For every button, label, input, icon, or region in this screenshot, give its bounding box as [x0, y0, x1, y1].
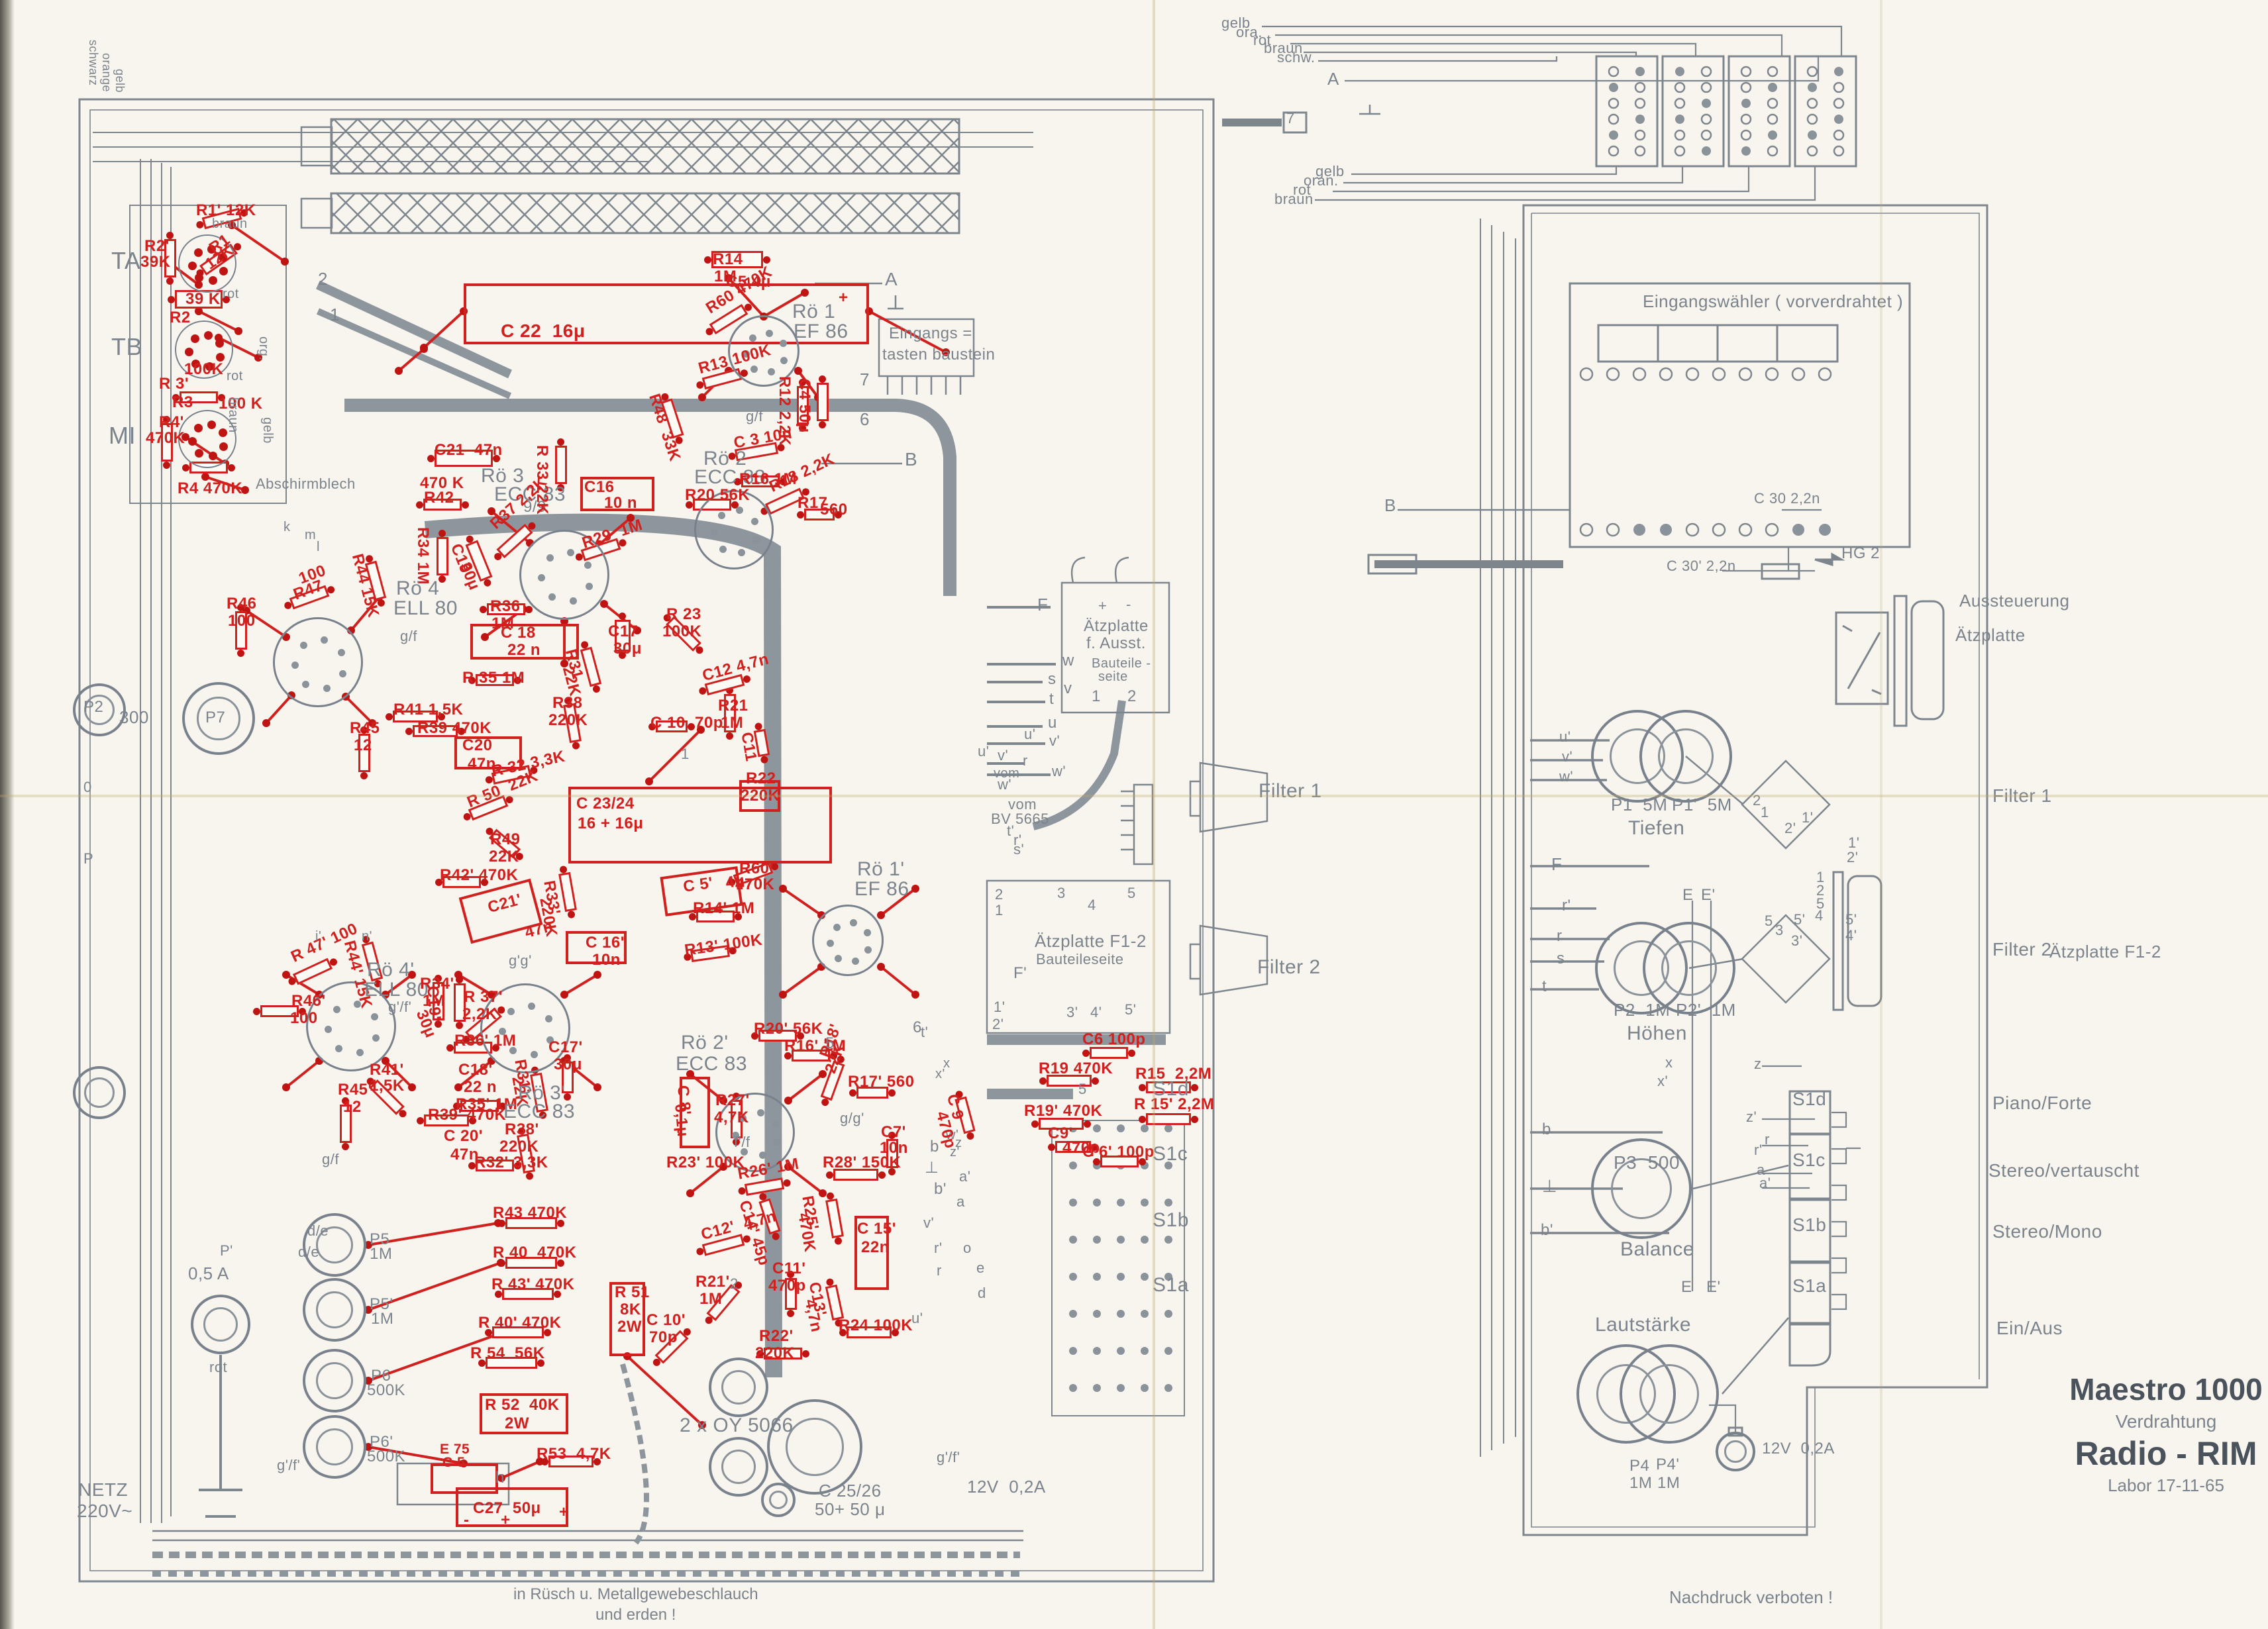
diagram-label: 470p: [768, 1278, 806, 1294]
potentiometer-icon: [73, 1066, 126, 1119]
diagram-label: C 30 2,2n: [1754, 491, 1820, 506]
diagram-label: R 43' 470K: [491, 1277, 574, 1293]
diagram-label: t: [1049, 691, 1054, 707]
socket-pin-icon: [772, 1120, 780, 1128]
socket-pin-icon: [291, 662, 299, 669]
diagram-label: EF 86: [854, 879, 909, 899]
socket-pin-icon: [545, 1015, 552, 1022]
diagram-label: P: [83, 852, 93, 866]
diagram-label: R24 100K: [839, 1318, 913, 1334]
solder-joint-icon: [281, 258, 289, 266]
diagram-label: schw.: [1277, 50, 1315, 65]
diagram-label: a': [959, 1169, 970, 1184]
tube-socket-icon: [812, 905, 884, 976]
diagram-label: o: [963, 1241, 972, 1256]
diagram-label: Ätzplatte F1-2: [2049, 943, 2161, 960]
diagram-label: R14: [713, 252, 743, 268]
diagram-label: C4 50μ: [796, 379, 812, 433]
diagram-label: ⊥: [925, 1160, 939, 1176]
diagram-label: g/f: [746, 409, 763, 424]
socket-pin-icon: [195, 273, 203, 282]
diagram-label: 220V~: [77, 1502, 132, 1520]
socket-pin-icon: [711, 529, 718, 536]
diagram-label: R21: [718, 698, 748, 714]
socket-pin-icon: [356, 1049, 364, 1056]
resistor-icon: [1090, 1047, 1128, 1059]
diagram-label: C16: [584, 479, 615, 495]
socket-pin-icon: [774, 1139, 781, 1146]
socket-pin-icon: [333, 1006, 340, 1013]
socket-pin-icon: [749, 334, 756, 342]
potentiometer-icon: [1716, 1432, 1755, 1471]
diagram-label: R38: [552, 695, 583, 711]
diagram-label: +: [839, 290, 849, 306]
red-wire: [501, 1461, 540, 1478]
diagram-label: 5: [1127, 886, 1136, 901]
socket-pin-icon: [780, 357, 788, 364]
diagram-label: C21 47n: [435, 442, 503, 458]
diagram-label: P2' 1M: [1676, 1001, 1736, 1018]
diagram-label: 2': [1847, 850, 1858, 865]
diagram-label: R3: [172, 395, 193, 411]
schematic-page: R1' 12KR2'39KR112K39 KR2100KR 3'R3100 KR…: [0, 0, 2268, 1629]
red-wire: [881, 967, 915, 995]
diagram-label: R36' 1M: [454, 1033, 516, 1049]
diagram-label: 2: [318, 270, 328, 287]
socket-pin-icon: [738, 549, 745, 556]
diagram-label: 0: [83, 780, 92, 795]
solder-joint-icon: [779, 991, 787, 999]
diagram-label: t': [921, 1025, 928, 1040]
diagram-label: R 40 470K: [493, 1245, 576, 1261]
socket-pin-icon: [194, 248, 203, 257]
diagram-label: 500K: [367, 1383, 405, 1399]
diagram-label: 300: [119, 709, 149, 726]
diagram-label: u': [1024, 727, 1035, 742]
diagram-label: R19 470K: [1039, 1061, 1113, 1077]
potentiometer-icon: [1620, 1344, 1719, 1444]
diagram-label: b': [1541, 1222, 1553, 1238]
socket-pin-icon: [219, 442, 228, 451]
diagram-label: Filter 2: [1992, 940, 2052, 959]
diagram-label: R 51: [615, 1285, 650, 1301]
diagram-label: v': [923, 1216, 934, 1230]
diagram-label: orange: [101, 53, 113, 92]
diagram-label: Filter 1: [1259, 781, 1322, 801]
diagram-label: Balance: [1620, 1240, 1694, 1259]
diagram-label: R42: [424, 490, 454, 506]
diagram-label: 220K: [755, 1346, 794, 1361]
socket-pin-icon: [538, 574, 545, 581]
diagram-label: R28' 150K: [823, 1155, 901, 1171]
diagram-label: 100: [228, 613, 256, 629]
diagram-label: 16 + 16μ: [578, 816, 643, 832]
diagram-label: 2': [992, 1017, 1004, 1032]
diagram-label: C 25/26: [819, 1482, 882, 1499]
title-block: Maestro 1000 Verdrahtung Radio - RIM Lab…: [2067, 1372, 2265, 1495]
socket-pin-icon: [835, 955, 842, 962]
diagram-label: 560: [820, 502, 848, 518]
diagram-label: r: [1557, 928, 1563, 944]
socket-pin-icon: [752, 536, 760, 544]
diagram-label: C17: [608, 624, 639, 640]
diagram-label: v: [1064, 681, 1072, 697]
fold-crease: [1153, 0, 1155, 1629]
diagram-label: C27 50μ: [473, 1501, 541, 1516]
diagram-label: r: [1765, 1132, 1770, 1147]
red-wire: [286, 1061, 319, 1087]
diagram-label: Rö 4: [396, 579, 439, 599]
diagram-label: C11': [772, 1261, 805, 1277]
diagram-label: 2': [1784, 821, 1796, 836]
diagram-label: 2: [1127, 689, 1137, 705]
diagram-label: s: [1048, 671, 1057, 687]
diagram-label: u': [978, 744, 989, 759]
socket-pin-icon: [219, 267, 228, 275]
diagram-label: R2: [170, 310, 191, 326]
socket-pin-icon: [570, 597, 577, 605]
diagram-label: tasten baustein: [882, 347, 995, 363]
diagram-label: braun: [212, 217, 248, 230]
diagram-label: k: [283, 520, 291, 534]
diagram-label: rot: [223, 287, 239, 301]
diagram-label: 220K: [548, 713, 588, 728]
diagram-label: R17' 560: [848, 1074, 914, 1090]
diagram-label: a: [956, 1195, 965, 1209]
diagram-label: 2W: [617, 1319, 642, 1335]
diagram-label: 4': [1845, 928, 1857, 943]
diagram-label: g/f: [322, 1152, 339, 1167]
diagram-label: r: [937, 1263, 942, 1278]
diagram-label: A: [1327, 70, 1339, 87]
potentiometer-icon: [191, 1295, 250, 1354]
socket-pin-icon: [864, 929, 871, 936]
diagram-label: -: [1126, 597, 1131, 612]
diagram-label: EF 86: [794, 322, 849, 342]
diagram-label: C 30' 2,2n: [1667, 559, 1736, 573]
solder-joint-icon: [911, 991, 919, 999]
diagram-label: u': [911, 1311, 923, 1326]
diagram-label: 12V 0,2A: [1762, 1441, 1835, 1457]
diagram-label: C17': [548, 1040, 583, 1056]
diagram-label: R4 470K: [178, 481, 242, 497]
resistor-icon: [437, 537, 448, 575]
diagram-label: 2: [730, 1277, 739, 1291]
solder-joint-icon: [645, 777, 653, 785]
diagram-label: g'/f': [937, 1450, 960, 1465]
diagram-label: C 10': [646, 1312, 686, 1328]
diagram-label: 8K: [620, 1302, 641, 1318]
diagram-label: R23' 100K: [666, 1155, 745, 1171]
diagram-label: 5: [825, 1036, 835, 1052]
diagram-label: 5: [1078, 1082, 1087, 1097]
solder-joint-icon: [686, 1189, 694, 1197]
diagram-label: n': [362, 930, 372, 943]
diagram-label: 2: [995, 887, 1004, 902]
diagram-label: C 6' 100p: [1082, 1144, 1155, 1160]
diagram-label: E: [1681, 1279, 1692, 1295]
red-wire: [424, 311, 464, 348]
diagram-label: b': [934, 1181, 947, 1197]
diagram-label: schwarz: [87, 40, 99, 86]
solder-joint-icon: [779, 885, 787, 893]
diagram-label: d: [978, 1286, 986, 1301]
solder-joint-icon: [877, 911, 885, 919]
diagram-label: C 5': [682, 875, 714, 895]
socket-pin-icon: [209, 276, 217, 285]
diagram-label: 1M: [370, 1246, 392, 1262]
solder-joint-icon: [408, 1083, 416, 1091]
resistor-icon: [555, 446, 567, 484]
diagram-label: R45: [350, 720, 380, 736]
diagram-label: 5': [1845, 913, 1857, 927]
socket-pin-icon: [188, 437, 197, 446]
drawing-type: Verdrahtung: [2067, 1411, 2265, 1432]
diagram-label: Abschirmblech: [256, 477, 356, 491]
diagram-label: 50+ 50 μ: [815, 1501, 885, 1518]
diagram-label: R 54 56K: [470, 1346, 545, 1361]
diagram-label: gelb: [261, 417, 274, 444]
diagram-label: C 22 16μ: [501, 322, 585, 340]
socket-pin-icon: [751, 518, 758, 525]
diagram-label: R46: [227, 596, 257, 612]
diagram-label: z': [1746, 1110, 1757, 1124]
diagram-label: r': [1754, 1143, 1763, 1158]
socket-pin-icon: [191, 334, 199, 343]
diagram-label: A: [885, 270, 898, 289]
diagram-label: u: [1048, 715, 1057, 731]
diagram-label: S1a: [1153, 1275, 1189, 1295]
potentiometer-icon: [709, 1437, 768, 1497]
diagram-label: Stereo/Mono: [1992, 1222, 2102, 1241]
diagram-label: Aussteuerung: [1959, 592, 2069, 609]
solder-joint-icon: [593, 971, 601, 979]
diagram-label: R 52 40K: [485, 1397, 560, 1413]
diagram-label: P7: [205, 710, 225, 726]
potentiometer-icon: [761, 1483, 796, 1517]
diagram-label: 500K: [367, 1449, 405, 1465]
diagram-label: 470K: [146, 430, 185, 446]
diagram-label: C6 100p: [1082, 1032, 1146, 1048]
socket-pin-icon: [759, 1152, 766, 1159]
socket-pin-icon: [335, 1045, 342, 1052]
diagram-label: w': [1559, 769, 1573, 784]
diagram-label: d/e: [298, 1245, 319, 1259]
diagram-label: R46': [291, 993, 326, 1009]
diagram-label: ELL 80: [393, 599, 458, 618]
diagram-label: braun: [227, 397, 240, 433]
potentiometer-icon: [1639, 710, 1732, 803]
diagram-label: R 37': [464, 989, 503, 1005]
socket-pin-icon: [864, 946, 872, 954]
diagram-label: 22n: [861, 1240, 890, 1256]
diagram-label: Stereo/vertauscht: [1988, 1161, 2139, 1180]
diagram-label: C11: [738, 731, 758, 763]
diagram-label: R4': [159, 415, 184, 430]
diagram-label: Tiefen: [1628, 818, 1684, 838]
diagram-label: 30μ: [613, 641, 642, 657]
diagram-label: w: [1062, 653, 1074, 669]
diagram-label: 6: [860, 411, 870, 428]
diagram-label: 2 x OY 5066: [680, 1416, 794, 1436]
diagram-label: C 16': [586, 935, 625, 951]
diagram-label: x': [935, 1067, 945, 1081]
diagram-label: d/e: [307, 1224, 329, 1238]
diagram-label: 22 n: [464, 1079, 497, 1095]
diagram-label: e: [976, 1261, 985, 1275]
diagram-label: C 20': [444, 1128, 483, 1144]
diagram-label: R36: [490, 599, 521, 615]
diagram-label: f'/f: [734, 1135, 750, 1150]
diagram-label: Ein/Aus: [1996, 1319, 2063, 1338]
solder-joint-icon: [877, 963, 885, 971]
fold-crease: [0, 795, 2268, 797]
diagram-label: P4': [1656, 1457, 1679, 1473]
diagram-label: Rö 2': [681, 1033, 729, 1053]
diagram-label: w': [1052, 764, 1066, 779]
diagram-label: v': [998, 748, 1008, 763]
diagram-label: S1d: [1792, 1090, 1826, 1109]
diagram-label: F: [1551, 856, 1562, 873]
diagram-label: B: [1384, 497, 1396, 514]
diagram-label: F: [1037, 596, 1048, 613]
diagram-label: C 15': [857, 1221, 896, 1237]
diagram-label: x': [1657, 1074, 1668, 1089]
diagram-label: R38': [505, 1122, 539, 1138]
diagram-label: R 3': [159, 376, 189, 392]
red-wire: [783, 889, 821, 915]
diagram-label: R34 1M: [415, 527, 431, 585]
diagram-label: g/g': [840, 1111, 864, 1126]
brand-name: Radio - RIM: [2067, 1435, 2265, 1473]
solder-joint-icon: [698, 393, 706, 401]
solder-joint-icon: [794, 367, 802, 375]
diagram-label: 1': [1848, 836, 1859, 850]
diagram-label: BV 5665: [991, 812, 1049, 826]
socket-pin-icon: [209, 452, 217, 460]
diagram-label: Bauteile -: [1092, 657, 1151, 670]
diagram-label: Rö 1: [792, 302, 835, 322]
diagram-label: 5: [1765, 914, 1773, 928]
diagram-label: C 23/24: [576, 796, 635, 812]
diagram-label: R43 470K: [493, 1205, 567, 1221]
socket-pin-icon: [852, 958, 859, 965]
diagram-label: Lautstärke: [1595, 1315, 1691, 1335]
diagram-label: r: [1023, 754, 1028, 768]
diagram-label: R 35 1M: [462, 670, 525, 686]
socket-pin-icon: [185, 348, 193, 356]
diagram-label: 10n: [592, 952, 621, 968]
diagram-label: 22K: [489, 849, 519, 865]
diagram-label: 2,2K: [462, 1007, 497, 1022]
diagram-label: R39 470K: [417, 720, 491, 736]
diagram-label: 4: [1815, 909, 1824, 923]
diagram-label: v': [1049, 734, 1060, 748]
fold-crease: [1880, 0, 1882, 1629]
diagram-label: 10n: [880, 1140, 908, 1156]
diagram-label: z: [1754, 1057, 1762, 1071]
diagram-label: 0,5 A: [188, 1265, 229, 1282]
socket-pin-icon: [338, 649, 345, 656]
socket-pin-icon: [718, 512, 725, 519]
diagram-label: 39K: [140, 254, 171, 270]
diagram-label: l: [317, 540, 320, 554]
socket-pin-icon: [195, 449, 203, 458]
diagram-label: g'g': [509, 954, 532, 968]
potentiometer-icon: [303, 1278, 366, 1342]
diagram-label: R27': [715, 1093, 750, 1109]
diagram-label: R20 56K: [685, 487, 750, 503]
diagram-label: 1M: [1657, 1475, 1680, 1491]
solder-joint-icon: [262, 719, 270, 727]
socket-pin-icon: [768, 368, 775, 375]
diagram-label: r': [1562, 898, 1571, 914]
diagram-label: m: [305, 528, 316, 542]
diagram-label: MI: [109, 424, 136, 448]
diagram-label: g/f: [400, 629, 417, 644]
socket-pin-icon: [194, 424, 203, 432]
diagram-label: 7: [1286, 111, 1295, 126]
red-wire: [788, 1074, 823, 1101]
diagram-label: Rö 4': [367, 960, 415, 980]
diagram-label: gelb: [114, 69, 126, 93]
diagram-label: 70p: [649, 1330, 678, 1346]
socket-pin-icon: [339, 670, 346, 677]
diagram-label: t: [1542, 979, 1547, 995]
diagram-label: Ätzplatte F1-2: [1035, 932, 1147, 950]
diagram-label: E: [1682, 887, 1694, 903]
diagram-label: R53 4,7K: [537, 1446, 611, 1462]
solder-joint-icon: [819, 1189, 827, 1197]
solder-joint-icon: [560, 991, 568, 999]
socket-pin-icon: [827, 940, 834, 947]
diagram-label: 100K: [184, 362, 223, 377]
diagram-label: R19' 470K: [1024, 1103, 1102, 1119]
socket-pin-icon: [204, 331, 213, 340]
diagram-label: TB: [111, 335, 142, 359]
diagram-label: S1b: [1153, 1210, 1189, 1230]
diagram-label: R14' 1M: [693, 901, 754, 916]
diagram-label: b: [930, 1139, 939, 1155]
socket-pin-icon: [766, 330, 773, 337]
socket-pin-icon: [833, 924, 841, 931]
diagram-label: R39' 470K: [428, 1107, 506, 1123]
diagram-label: 4: [1088, 898, 1096, 913]
diagram-label: 1M: [1629, 1475, 1652, 1491]
diagram-label: f. Ausst.: [1086, 636, 1146, 652]
solder-joint-icon: [600, 600, 608, 608]
diagram-label: 1M: [699, 1291, 722, 1307]
diagram-label: rot: [227, 370, 243, 383]
solder-joint-icon: [420, 345, 428, 353]
diagram-label: S1d: [1153, 1079, 1189, 1099]
diagram-label: 3: [1057, 886, 1066, 901]
red-wire: [783, 967, 821, 995]
diagram-label: 1M: [371, 1311, 393, 1327]
diagram-label: 30μ: [554, 1057, 582, 1073]
red-wire: [399, 349, 424, 371]
diagram-label: R45': [338, 1082, 372, 1098]
diagram-label: org.: [257, 336, 270, 360]
red-wire: [649, 730, 701, 781]
diagram-label: a': [1759, 1176, 1771, 1191]
socket-pin-icon: [780, 340, 787, 347]
diagram-label: R22': [759, 1328, 794, 1344]
diagram-label: R 23: [666, 607, 701, 622]
red-wire: [266, 695, 291, 723]
diagram-label: 1': [1802, 811, 1813, 825]
socket-pin-icon: [372, 1034, 380, 1042]
